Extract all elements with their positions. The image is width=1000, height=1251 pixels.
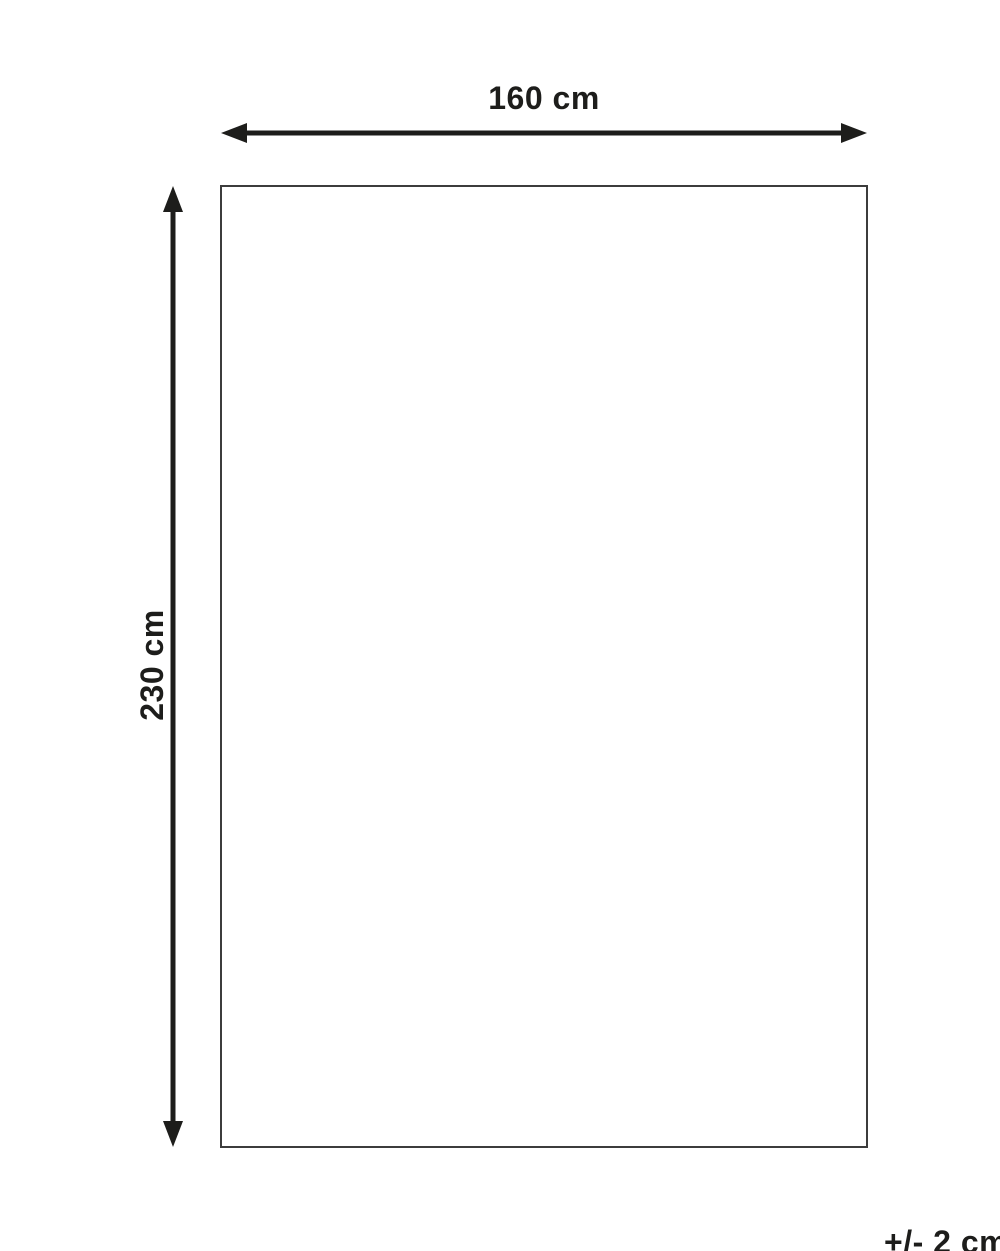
arrowhead-down-icon: [163, 1121, 183, 1147]
tolerance-label: +/- 2 cm: [884, 1226, 1000, 1251]
arrowhead-left-icon: [221, 123, 247, 143]
width-dimension-label: 160 cm: [220, 82, 868, 114]
dimension-diagram: 160 cm 230 cm +/- 2 cm: [0, 0, 1000, 1251]
arrowhead-right-icon: [841, 123, 867, 143]
height-dimension-label: 230 cm: [136, 609, 168, 721]
product-outline-rectangle: [220, 185, 868, 1148]
horizontal-dimension-arrow: [220, 120, 868, 146]
arrowhead-up-icon: [163, 186, 183, 212]
